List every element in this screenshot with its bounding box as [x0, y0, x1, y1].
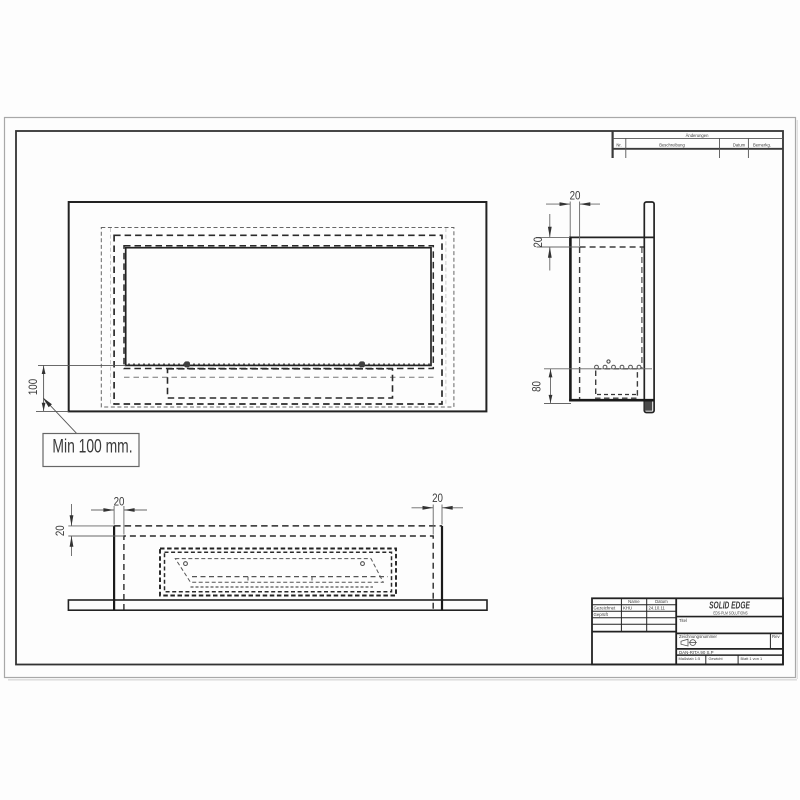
- svg-text:20: 20: [532, 237, 545, 248]
- svg-text:Änderungen: Änderungen: [686, 133, 709, 138]
- svg-text:DAN-RITA 90 S.P: DAN-RITA 90 S.P: [679, 650, 714, 655]
- svg-text:100: 100: [27, 379, 40, 395]
- svg-text:Titel: Titel: [679, 618, 687, 623]
- svg-text:24.10.11: 24.10.11: [649, 606, 666, 611]
- svg-text:SOLID EDGE: SOLID EDGE: [709, 599, 750, 611]
- svg-text:Rev: Rev: [772, 634, 780, 639]
- svg-text:Zeichnungsnummer: Zeichnungsnummer: [679, 634, 718, 639]
- svg-text:Gewicht: Gewicht: [709, 656, 724, 661]
- svg-text:20: 20: [114, 496, 125, 509]
- svg-text:KHU: KHU: [623, 606, 632, 611]
- svg-text:80: 80: [531, 381, 544, 392]
- svg-text:Geprüft: Geprüft: [594, 612, 609, 617]
- svg-text:Name: Name: [628, 599, 640, 604]
- svg-text:Nr.: Nr.: [616, 143, 621, 148]
- svg-text:Blatt 1 von 1: Blatt 1 von 1: [741, 656, 763, 661]
- svg-text:Bemerkg.: Bemerkg.: [753, 143, 771, 148]
- svg-text:Datum: Datum: [733, 143, 746, 148]
- svg-text:Min 100 mm.: Min 100 mm.: [52, 435, 132, 457]
- svg-text:20: 20: [570, 190, 581, 203]
- svg-text:20: 20: [432, 492, 443, 505]
- svg-text:Maßstab 1:5: Maßstab 1:5: [679, 656, 701, 661]
- svg-text:Beschreibung: Beschreibung: [659, 143, 685, 148]
- svg-text:20: 20: [54, 525, 67, 536]
- svg-text:Gezeichnet: Gezeichnet: [594, 606, 617, 611]
- svg-text:EDS-PLM SOLUTIONS: EDS-PLM SOLUTIONS: [713, 611, 748, 615]
- svg-text:Datum: Datum: [655, 599, 668, 604]
